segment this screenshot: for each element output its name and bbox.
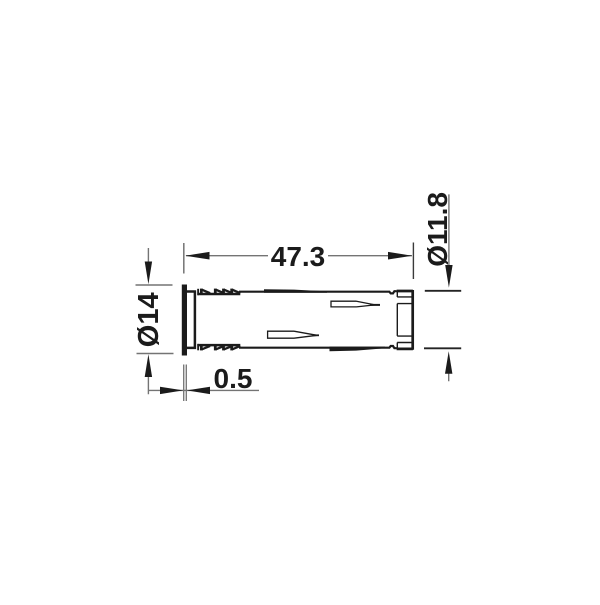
- svg-text:Ø11.8: Ø11.8: [422, 192, 453, 267]
- svg-text:47.3: 47.3: [271, 241, 326, 272]
- svg-text:0.5: 0.5: [214, 363, 253, 394]
- svg-text:Ø14: Ø14: [133, 292, 165, 347]
